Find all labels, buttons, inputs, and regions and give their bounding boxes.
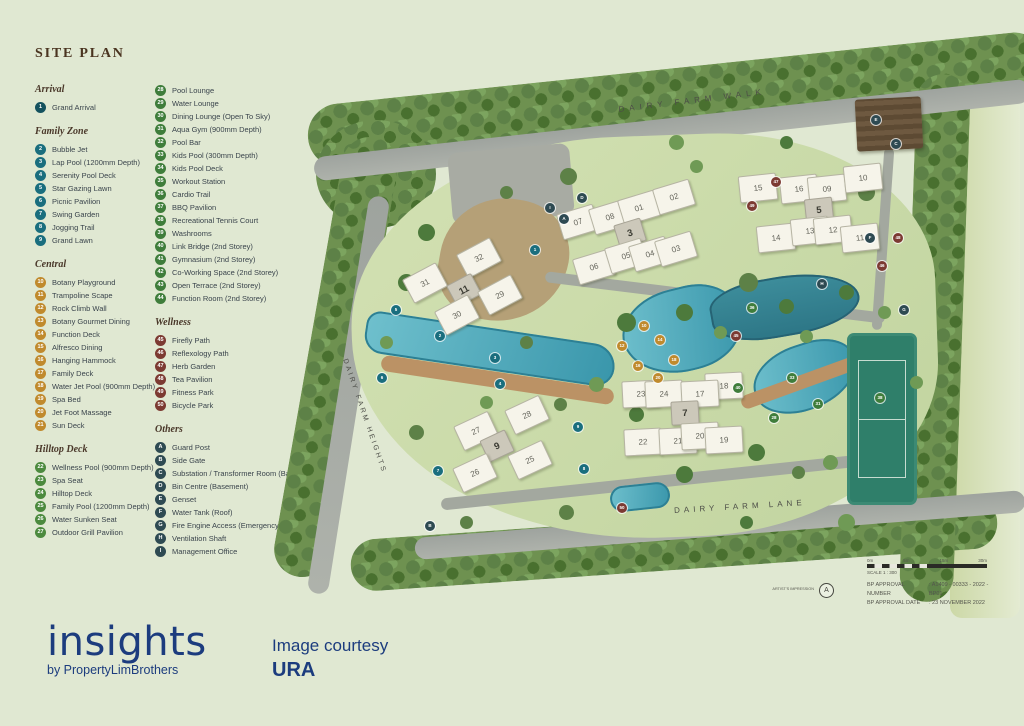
scattered-trees bbox=[322, 78, 335, 91]
map-amenity-marker: 14 bbox=[655, 335, 665, 345]
map-amenity-marker: 3 bbox=[490, 353, 500, 363]
legend-item-label: Ventilation Shaft bbox=[172, 534, 226, 543]
legend-item: 13Botany Gourmet Dining bbox=[35, 315, 163, 328]
legend-item-label: Jogging Trail bbox=[52, 223, 95, 232]
legend-item: 48Tea Pavilion bbox=[155, 373, 327, 386]
scale-bar-ticks: 0m 5m 15m 30m bbox=[867, 558, 987, 563]
legend-item-label: Bin Centre (Basement) bbox=[172, 482, 248, 491]
legend-item-label: Co-Working Space (2nd Storey) bbox=[172, 268, 278, 277]
bp-approval-date-value: : 23 NOVEMBER 2022 bbox=[929, 599, 1002, 608]
legend-item-label: Recreational Tennis Court bbox=[172, 216, 258, 225]
legend-item-marker: 26 bbox=[35, 514, 46, 525]
legend-section: Central10Botany Playground11Trampoline S… bbox=[35, 259, 163, 432]
legend-item-marker: 17 bbox=[35, 368, 46, 379]
legend-item-marker: 25 bbox=[35, 501, 46, 512]
map-amenity-marker: C bbox=[891, 139, 901, 149]
legend-item: 47Herb Garden bbox=[155, 360, 327, 373]
legend-item-label: Reflexology Path bbox=[172, 349, 229, 358]
legend-item-label: Workout Station bbox=[172, 177, 225, 186]
legend-item-marker: 18 bbox=[35, 381, 46, 392]
legend-item-marker: 43 bbox=[155, 280, 166, 291]
legend-item-label: Grand Lawn bbox=[52, 236, 93, 245]
map-amenity-marker: 40 bbox=[733, 383, 743, 393]
legend-item: 2Bubble Jet bbox=[35, 143, 163, 156]
map-amenity-marker: 10 bbox=[639, 321, 649, 331]
legend-item-label: Sun Deck bbox=[52, 421, 85, 430]
legend-item: 3Lap Pool (1200mm Depth) bbox=[35, 156, 163, 169]
legend-item-marker: 49 bbox=[155, 387, 166, 398]
scale-ratio-text: SCALE 1 : 300 bbox=[867, 570, 1002, 575]
legend-item-marker: 6 bbox=[35, 196, 46, 207]
tennis-court bbox=[850, 336, 914, 502]
legend-section-heading: Family Zone bbox=[35, 126, 163, 137]
map-amenity-marker: 6 bbox=[377, 373, 387, 383]
legend-item-marker: 34 bbox=[155, 163, 166, 174]
legend-item-label: Alfresco Dining bbox=[52, 343, 102, 352]
legend-item-marker: 30 bbox=[155, 111, 166, 122]
legend-item-marker: 1 bbox=[35, 102, 46, 113]
legend-item-marker: 44 bbox=[155, 293, 166, 304]
site-plan-page: SITE PLAN Arrival1Grand ArrivalFamily Zo… bbox=[0, 0, 1024, 726]
legend-column-1: Arrival1Grand ArrivalFamily Zone2Bubble … bbox=[35, 84, 163, 551]
legend-item-marker: 40 bbox=[155, 241, 166, 252]
bp-approval-number-label: BP APPROVAL NUMBER bbox=[867, 581, 929, 599]
legend-item: 44Function Room (2nd Storey) bbox=[155, 292, 327, 305]
legend-item-label: Function Deck bbox=[52, 330, 100, 339]
legend-section-heading: Wellness bbox=[155, 317, 327, 328]
legend-item: 45Firefly Path bbox=[155, 334, 327, 347]
map-amenity-marker: D bbox=[577, 193, 587, 203]
legend-item-label: Cardio Trail bbox=[172, 190, 210, 199]
legend-item-label: Bicycle Park bbox=[172, 401, 213, 410]
legend-item-label: Aqua Gym (900mm Depth) bbox=[172, 125, 262, 134]
legend-item-marker: 14 bbox=[35, 329, 46, 340]
legend-item: 23Spa Seat bbox=[35, 474, 163, 487]
legend-item-label: Pool Lounge bbox=[172, 86, 214, 95]
legend-item: 12Rock Climb Wall bbox=[35, 302, 163, 315]
legend-item-marker: 38 bbox=[155, 215, 166, 226]
legend-item: 33Kids Pool (300mm Depth) bbox=[155, 149, 327, 162]
legend-item-label: Dining Lounge (Open To Sky) bbox=[172, 112, 270, 121]
legend-item: 31Aqua Gym (900mm Depth) bbox=[155, 123, 327, 136]
legend-item: 6Picnic Pavilion bbox=[35, 195, 163, 208]
legend-item: 39Washrooms bbox=[155, 227, 327, 240]
legend-item-label: Spa Bed bbox=[52, 395, 81, 404]
scale-and-approval-block: 0m 5m 15m 30m SCALE 1 : 300 BP APPROVAL … bbox=[867, 558, 1002, 608]
legend-item-label: Lap Pool (1200mm Depth) bbox=[52, 158, 140, 167]
legend-item-marker: H bbox=[155, 533, 166, 544]
legend-item-label: Open Terrace (2nd Storey) bbox=[172, 281, 261, 290]
map-amenity-marker: 31 bbox=[813, 399, 823, 409]
map-amenity-marker: 20 bbox=[653, 373, 663, 383]
legend-item-label: Jet Foot Massage bbox=[52, 408, 112, 417]
scale-tick: 0m bbox=[867, 558, 873, 563]
bp-approval-date-label: BP APPROVAL DATE bbox=[867, 599, 929, 608]
legend-item: 10Botany Playground bbox=[35, 276, 163, 289]
legend-item-label: Family Pool (1200mm Depth) bbox=[52, 502, 150, 511]
map-amenity-marker: 18 bbox=[669, 355, 679, 365]
legend-item-marker: 20 bbox=[35, 407, 46, 418]
legend-section-heading: Arrival bbox=[35, 84, 163, 95]
map-amenity-marker: 2 bbox=[435, 331, 445, 341]
legend-item: 26Water Sunken Seat bbox=[35, 513, 163, 526]
legend-item-label: Water Jet Pool (900mm Depth) bbox=[52, 382, 155, 391]
legend-section: Arrival1Grand Arrival bbox=[35, 84, 163, 114]
legend-item-marker: 23 bbox=[35, 475, 46, 486]
map-amenity-marker: 8 bbox=[579, 464, 589, 474]
map-amenity-marker: 5 bbox=[391, 305, 401, 315]
legend-item-label: Wellness Pool (900mm Depth) bbox=[52, 463, 154, 472]
legend-item-marker: 12 bbox=[35, 303, 46, 314]
legend-item-marker: 8 bbox=[35, 222, 46, 233]
legend-item-marker: 39 bbox=[155, 228, 166, 239]
legend-item-marker: 29 bbox=[155, 98, 166, 109]
legend-item: 32Pool Bar bbox=[155, 136, 327, 149]
legend-item-marker: 31 bbox=[155, 124, 166, 135]
legend-item: 9Grand Lawn bbox=[35, 234, 163, 247]
legend-item-marker: 47 bbox=[155, 361, 166, 372]
legend-item: 30Dining Lounge (Open To Sky) bbox=[155, 110, 327, 123]
legend-item-label: Grand Arrival bbox=[52, 103, 96, 112]
legend-item-marker: 33 bbox=[155, 150, 166, 161]
legend-item-marker: G bbox=[155, 520, 166, 531]
tennis-court-net-line bbox=[858, 419, 906, 420]
legend-item: 41Gymnasium (2nd Storey) bbox=[155, 253, 327, 266]
legend-item-marker: 2 bbox=[35, 144, 46, 155]
building-block: 22 bbox=[623, 428, 662, 457]
legend-item: 16Hanging Hammock bbox=[35, 354, 163, 367]
legend-section: 28Pool Lounge29Water Lounge30Dining Loun… bbox=[155, 84, 327, 305]
legend-item-label: Guard Post bbox=[172, 443, 210, 452]
legend-item-marker: 50 bbox=[155, 400, 166, 411]
legend-item-marker: 41 bbox=[155, 254, 166, 265]
legend-item: 25Family Pool (1200mm Depth) bbox=[35, 500, 163, 513]
scale-tick: 15m bbox=[939, 558, 948, 563]
map-amenity-marker: 46 bbox=[877, 261, 887, 271]
legend-item: 42Co-Working Space (2nd Storey) bbox=[155, 266, 327, 279]
legend-item-marker: 42 bbox=[155, 267, 166, 278]
legend-item: 15Alfresco Dining bbox=[35, 341, 163, 354]
legend-item-label: Serenity Pool Deck bbox=[52, 171, 116, 180]
legend-item: 27Outdoor Grill Pavilion bbox=[35, 526, 163, 539]
image-courtesy-credit: Image courtesy URA bbox=[272, 636, 388, 682]
legend-item-label: Rock Climb Wall bbox=[52, 304, 107, 313]
map-amenity-marker: 4 bbox=[495, 379, 505, 389]
legend-item: 35Workout Station bbox=[155, 175, 327, 188]
legend-item-marker: E bbox=[155, 494, 166, 505]
map-amenity-marker: H bbox=[817, 279, 827, 289]
map-amenity-marker: 45 bbox=[731, 331, 741, 341]
legend-item-label: Kids Pool (300mm Depth) bbox=[172, 151, 258, 160]
legend-item-marker: 21 bbox=[35, 420, 46, 431]
legend-item-marker: F bbox=[155, 507, 166, 518]
legend-item: 22Wellness Pool (900mm Depth) bbox=[35, 461, 163, 474]
legend-item-marker: 7 bbox=[35, 209, 46, 220]
legend-item-marker: 37 bbox=[155, 202, 166, 213]
legend-item-marker: 27 bbox=[35, 527, 46, 538]
legend-item-marker: 19 bbox=[35, 394, 46, 405]
map-amenity-marker: 47 bbox=[771, 177, 781, 187]
legend-item-label: Spa Seat bbox=[52, 476, 83, 485]
legend-item-label: Hilltop Deck bbox=[52, 489, 92, 498]
legend-item-label: Washrooms bbox=[172, 229, 212, 238]
legend-item-label: Hanging Hammock bbox=[52, 356, 116, 365]
legend-item-label: Bubble Jet bbox=[52, 145, 87, 154]
legend-item-label: Fitness Park bbox=[172, 388, 214, 397]
legend-item: 8Jogging Trail bbox=[35, 221, 163, 234]
substation-structure bbox=[855, 96, 924, 151]
map-amenity-marker: 49 bbox=[747, 201, 757, 211]
scale-bar bbox=[867, 564, 987, 568]
legend-item-marker: 11 bbox=[35, 290, 46, 301]
map-amenity-marker: 50 bbox=[617, 503, 627, 513]
legend-item-label: Herb Garden bbox=[172, 362, 215, 371]
legend-item: 5Star Gazing Lawn bbox=[35, 182, 163, 195]
scale-bar-solid bbox=[927, 564, 987, 568]
site-plan-map: 3132112930070801023060504031516091051413… bbox=[322, 78, 1020, 618]
legend-section: Family Zone2Bubble Jet3Lap Pool (1200mm … bbox=[35, 126, 163, 247]
legend-item-marker: 4 bbox=[35, 170, 46, 181]
legend-item-label: Side Gate bbox=[172, 456, 205, 465]
legend-item: 7Swing Garden bbox=[35, 208, 163, 221]
legend-item: 46Reflexology Path bbox=[155, 347, 327, 360]
legend-item-marker: 3 bbox=[35, 157, 46, 168]
legend-item: 37BBQ Pavilion bbox=[155, 201, 327, 214]
legend-item-label: Star Gazing Lawn bbox=[52, 184, 112, 193]
map-amenity-marker: 12 bbox=[617, 341, 627, 351]
legend-item-label: BBQ Pavilion bbox=[172, 203, 216, 212]
legend-item-marker: B bbox=[155, 455, 166, 466]
legend-item-marker: 45 bbox=[155, 335, 166, 346]
map-amenity-marker: I bbox=[545, 203, 555, 213]
image-courtesy-text: Image courtesy bbox=[272, 636, 388, 656]
legend-item: 43Open Terrace (2nd Storey) bbox=[155, 279, 327, 292]
map-amenity-marker: 28 bbox=[769, 413, 779, 423]
map-amenity-marker: B bbox=[425, 521, 435, 531]
legend-item-marker: 28 bbox=[155, 85, 166, 96]
ura-credit: URA bbox=[272, 659, 388, 682]
propertylimbrothers-byline: by PropertyLimBrothers bbox=[47, 663, 207, 677]
map-amenity-marker: A bbox=[559, 214, 569, 224]
building-block: 19 bbox=[704, 426, 743, 455]
scale-tick: 5m bbox=[903, 558, 909, 563]
map-amenity-marker: 38 bbox=[875, 393, 885, 403]
legend-item: 20Jet Foot Massage bbox=[35, 406, 163, 419]
legend-item: 21Sun Deck bbox=[35, 419, 163, 432]
legend-item: 4Serenity Pool Deck bbox=[35, 169, 163, 182]
insights-logo: insights by PropertyLimBrothers bbox=[47, 620, 207, 677]
legend-item-marker: 15 bbox=[35, 342, 46, 353]
legend-item: 1Grand Arrival bbox=[35, 101, 163, 114]
legend-item-marker: 22 bbox=[35, 462, 46, 473]
north-indicator: A bbox=[819, 583, 834, 598]
legend-item-label: Kids Pool Deck bbox=[172, 164, 223, 173]
legend-item-label: Water Sunken Seat bbox=[52, 515, 117, 524]
legend-section-heading: Hilltop Deck bbox=[35, 444, 163, 455]
legend-item-marker: 16 bbox=[35, 355, 46, 366]
legend-item: 36Cardio Trail bbox=[155, 188, 327, 201]
legend-item: 17Family Deck bbox=[35, 367, 163, 380]
legend-section: Hilltop Deck22Wellness Pool (900mm Depth… bbox=[35, 444, 163, 539]
map-amenity-marker: 16 bbox=[633, 361, 643, 371]
legend-item-label: Picnic Pavilion bbox=[52, 197, 100, 206]
legend-item-marker: A bbox=[155, 442, 166, 453]
legend-item-marker: 35 bbox=[155, 176, 166, 187]
legend-item: 14Function Deck bbox=[35, 328, 163, 341]
map-amenity-marker: E bbox=[871, 115, 881, 125]
legend-item: 40Link Bridge (2nd Storey) bbox=[155, 240, 327, 253]
legend-item-label: Gymnasium (2nd Storey) bbox=[172, 255, 255, 264]
legend-item: 18Water Jet Pool (900mm Depth) bbox=[35, 380, 163, 393]
map-amenity-marker: 48 bbox=[893, 233, 903, 243]
legend-item-marker: 46 bbox=[155, 348, 166, 359]
legend-item: 28Pool Lounge bbox=[155, 84, 327, 97]
legend-item-label: Pool Bar bbox=[172, 138, 201, 147]
map-amenity-marker: F bbox=[865, 233, 875, 243]
map-amenity-marker: 9 bbox=[573, 422, 583, 432]
legend-item-marker: 24 bbox=[35, 488, 46, 499]
map-amenity-marker: G bbox=[899, 305, 909, 315]
legend-item-marker: 32 bbox=[155, 137, 166, 148]
artists-impression-note: ARTIST'S IMPRESSION bbox=[772, 587, 814, 592]
legend-item-label: Trampoline Scape bbox=[52, 291, 113, 300]
legend-item-label: Outdoor Grill Pavilion bbox=[52, 528, 123, 537]
legend-item-marker: 10 bbox=[35, 277, 46, 288]
legend-item-marker: 48 bbox=[155, 374, 166, 385]
scale-tick: 30m bbox=[978, 558, 987, 563]
legend-item-marker: 9 bbox=[35, 235, 46, 246]
legend-item: 34Kids Pool Deck bbox=[155, 162, 327, 175]
legend-item: 38Recreational Tennis Court bbox=[155, 214, 327, 227]
page-title: SITE PLAN bbox=[35, 46, 125, 62]
legend-item-label: Swing Garden bbox=[52, 210, 100, 219]
legend-item-marker: 5 bbox=[35, 183, 46, 194]
map-amenity-marker: 36 bbox=[747, 303, 757, 313]
legend-item-label: Function Room (2nd Storey) bbox=[172, 294, 266, 303]
legend-item: 19Spa Bed bbox=[35, 393, 163, 406]
legend-item: 29Water Lounge bbox=[155, 97, 327, 110]
insights-wordmark: insights bbox=[47, 620, 207, 664]
legend-item-label: Botany Gourmet Dining bbox=[52, 317, 130, 326]
building-block: 10 bbox=[843, 163, 884, 194]
legend-item-label: Firefly Path bbox=[172, 336, 210, 345]
legend-item-marker: I bbox=[155, 546, 166, 557]
legend-item-label: Botany Playground bbox=[52, 278, 115, 287]
legend-item-label: Link Bridge (2nd Storey) bbox=[172, 242, 253, 251]
legend-item-marker: D bbox=[155, 481, 166, 492]
bp-approval-text: BP APPROVAL NUMBER : A1409 - 00333 - 202… bbox=[867, 581, 1002, 608]
scale-bar-segmented bbox=[867, 564, 927, 568]
legend-item-marker: 13 bbox=[35, 316, 46, 327]
map-amenity-marker: 7 bbox=[433, 466, 443, 476]
bp-approval-number-value: : A1409 - 00333 - 2022 - BP01 bbox=[929, 581, 1002, 599]
legend-item-label: Management Office bbox=[172, 547, 237, 556]
legend-item-label: Water Lounge bbox=[172, 99, 219, 108]
legend-item-label: Family Deck bbox=[52, 369, 93, 378]
legend-item-marker: C bbox=[155, 468, 166, 479]
legend-item-label: Tea Pavilion bbox=[172, 375, 212, 384]
legend-section-heading: Central bbox=[35, 259, 163, 270]
legend-item: 24Hilltop Deck bbox=[35, 487, 163, 500]
legend-item-label: Genset bbox=[172, 495, 196, 504]
legend-item: 11Trampoline Scape bbox=[35, 289, 163, 302]
legend-item-marker: 36 bbox=[155, 189, 166, 200]
map-amenity-marker: 33 bbox=[787, 373, 797, 383]
legend-item-label: Water Tank (Roof) bbox=[172, 508, 232, 517]
map-amenity-marker: 1 bbox=[530, 245, 540, 255]
